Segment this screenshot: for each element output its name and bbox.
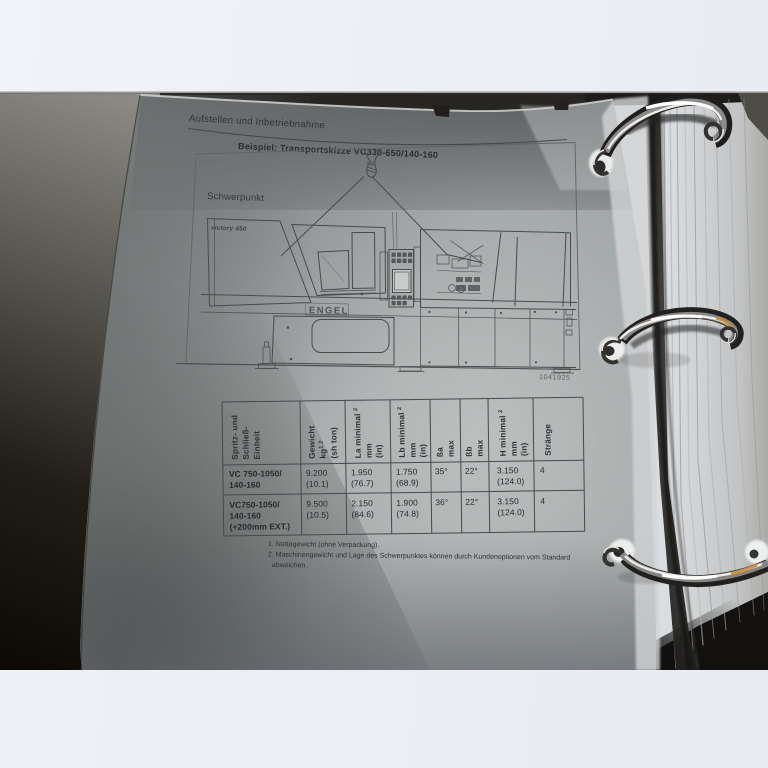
svg-text:1.750: 1.750 bbox=[396, 466, 418, 476]
svg-text:(124.0): (124.0) bbox=[497, 507, 524, 517]
svg-text:La minimal 2: La minimal 2 bbox=[353, 408, 363, 459]
svg-text:Gewicht: Gewicht bbox=[307, 425, 316, 458]
svg-text:4: 4 bbox=[360, 292, 363, 298]
svg-text:mm: mm bbox=[510, 441, 519, 456]
svg-text:1.900: 1.900 bbox=[396, 497, 418, 507]
svg-text:2.150: 2.150 bbox=[351, 498, 373, 508]
svg-text:3.150: 3.150 bbox=[497, 496, 519, 506]
svg-text:22°: 22° bbox=[465, 466, 478, 476]
svg-text:1041925: 1041925 bbox=[539, 372, 571, 382]
svg-text:VC 750-1050/: VC 750-1050/ bbox=[229, 468, 283, 479]
svg-text:3.150: 3.150 bbox=[497, 465, 519, 475]
svg-text:VC750-1050/: VC750-1050/ bbox=[229, 499, 280, 510]
svg-text:victory 450: victory 450 bbox=[211, 225, 247, 233]
svg-text:9.200: 9.200 bbox=[306, 468, 328, 478]
svg-text:abweichen.: abweichen. bbox=[272, 562, 308, 569]
svg-text:H minimal 2: H minimal 2 bbox=[498, 410, 508, 457]
svg-text:Stränge: Stränge bbox=[543, 424, 552, 456]
svg-text:140-160: 140-160 bbox=[229, 510, 261, 520]
svg-text:(in): (in) bbox=[520, 442, 529, 456]
svg-text:ßb: ßb bbox=[465, 446, 474, 457]
svg-text:(in): (in) bbox=[375, 444, 384, 458]
svg-text:1. Nettogewicht (ohne Verpacku: 1. Nettogewicht (ohne Verpackung). bbox=[268, 541, 379, 549]
svg-text:4: 4 bbox=[540, 465, 545, 475]
svg-text:(10.5): (10.5) bbox=[306, 510, 329, 520]
svg-text:(10.1): (10.1) bbox=[306, 479, 329, 489]
svg-text:Schwerpunkt: Schwerpunkt bbox=[207, 191, 265, 204]
svg-text:(68.9): (68.9) bbox=[396, 477, 419, 487]
svg-text:(+200mm EXT.): (+200mm EXT.) bbox=[230, 521, 291, 532]
svg-text:(84.6): (84.6) bbox=[351, 509, 374, 519]
svg-text:mm: mm bbox=[409, 442, 418, 457]
svg-text:9.500: 9.500 bbox=[306, 499, 328, 509]
svg-text:ßa: ßa bbox=[436, 447, 445, 457]
svg-text:(sh ton): (sh ton) bbox=[329, 427, 338, 459]
svg-text:4: 4 bbox=[540, 496, 545, 506]
svg-text:Schließ-: Schließ- bbox=[241, 426, 250, 460]
svg-text:max: max bbox=[447, 440, 456, 457]
svg-text:Lb minimal 2: Lb minimal 2 bbox=[397, 407, 407, 458]
svg-text:(76.7): (76.7) bbox=[351, 478, 374, 488]
svg-text:max: max bbox=[476, 439, 485, 456]
svg-text:1.950: 1.950 bbox=[351, 467, 373, 477]
svg-text:Spritz- und: Spritz- und bbox=[230, 415, 240, 460]
svg-text:36°: 36° bbox=[435, 497, 448, 507]
svg-text:35°: 35° bbox=[435, 466, 448, 476]
svg-text:(74.8): (74.8) bbox=[396, 508, 419, 518]
svg-text:(in): (in) bbox=[419, 444, 428, 458]
svg-text:140-160: 140-160 bbox=[229, 480, 261, 490]
svg-text:ENGEL: ENGEL bbox=[309, 305, 349, 317]
svg-text:Einheit: Einheit bbox=[252, 431, 261, 460]
svg-text:22°: 22° bbox=[465, 497, 478, 507]
svg-text:mm: mm bbox=[365, 443, 374, 458]
svg-text:(124.0): (124.0) bbox=[497, 476, 524, 486]
